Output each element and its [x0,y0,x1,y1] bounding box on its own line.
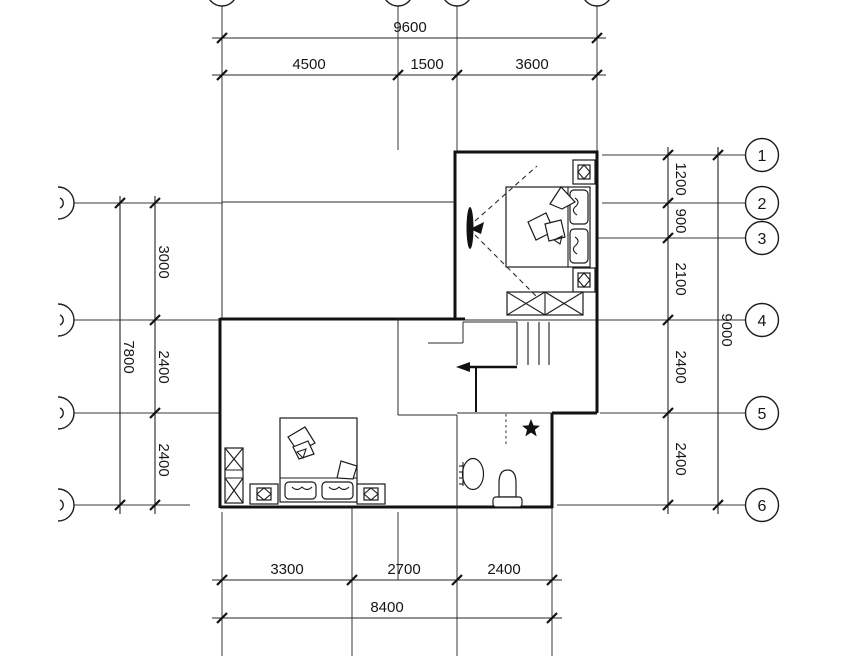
dim-bottom-segment-label: 2400 [487,561,520,578]
dim-right-segment-label: 2400 [672,350,689,383]
dim-right-segment-label: 1200 [672,162,689,195]
grid-bubble-1-label: 1 [758,148,767,165]
grid-lines [74,0,746,656]
dim-right-segment-label: 900 [672,208,689,233]
grid-bubble-4-label: 4 [758,313,767,330]
floor-plan-drawing: 9600 4500 1500 3600 3300 2700 2400 8400 … [0,0,841,660]
dim-left-segment-label: 3000 [155,245,172,278]
pillow [322,482,353,499]
grid-bubble-2-label: 2 [758,196,767,213]
bedroom-lower [225,418,385,504]
dim-left-segment-label: 2400 [155,350,172,383]
grid-bubble-3-label: 3 [758,231,767,248]
dimension-bottom: 3300 2700 2400 8400 [212,561,562,623]
nightstand [573,268,595,292]
double-bed-upper [506,187,590,267]
wardrobe-lower [225,448,243,503]
bedroom-upper [467,160,596,315]
pillow [570,229,588,263]
pillow [285,482,316,499]
pillow [570,190,588,224]
grid-bubble-6-label: 6 [758,498,767,515]
nightstand [250,484,278,504]
dim-top-segment-label: 1500 [410,56,443,73]
dim-left-segment-label: 2400 [155,443,172,476]
staircase [428,322,549,412]
washbasin [459,459,484,490]
dim-bottom-segment-label: 3300 [270,561,303,578]
nightstand [573,160,595,184]
grid-bubbles-right: 1 2 3 4 5 6 [746,139,779,522]
ceiling-light-star [522,419,540,436]
grid-bubble-5-label: 5 [758,406,767,423]
dim-top-segment-label: 4500 [292,56,325,73]
dimension-left: 7800 3000 2400 2400 [115,196,172,514]
dim-bottom-overall-label: 8400 [370,599,403,616]
nightstand [357,484,385,504]
terrace-outline [222,202,455,318]
floor-plan-canvas: 9600 4500 1500 3600 3300 2700 2400 8400 … [0,0,841,660]
dim-top-overall-label: 9600 [393,19,426,36]
bathroom [459,414,540,507]
dim-right-overall-label: 9000 [718,313,735,346]
dim-left-overall-label: 7800 [120,340,137,373]
dim-right-segment-label: 2400 [672,442,689,475]
grid-bubbles-left-cropped [58,187,74,521]
toilet [493,470,522,507]
dim-bottom-segment-label: 2700 [387,561,420,578]
grid-bubble-top-cропped-1 [207,0,237,6]
stair-direction-arrow [456,362,517,412]
dimension-right: 1200 900 2100 2400 2400 9000 [663,147,735,514]
double-bed-lower [280,418,357,502]
wardrobe-upper [507,292,583,315]
dim-right-segment-label: 2100 [672,262,689,295]
dimension-top: 9600 4500 1500 3600 [212,19,606,80]
dim-top-segment-label: 3600 [515,56,548,73]
